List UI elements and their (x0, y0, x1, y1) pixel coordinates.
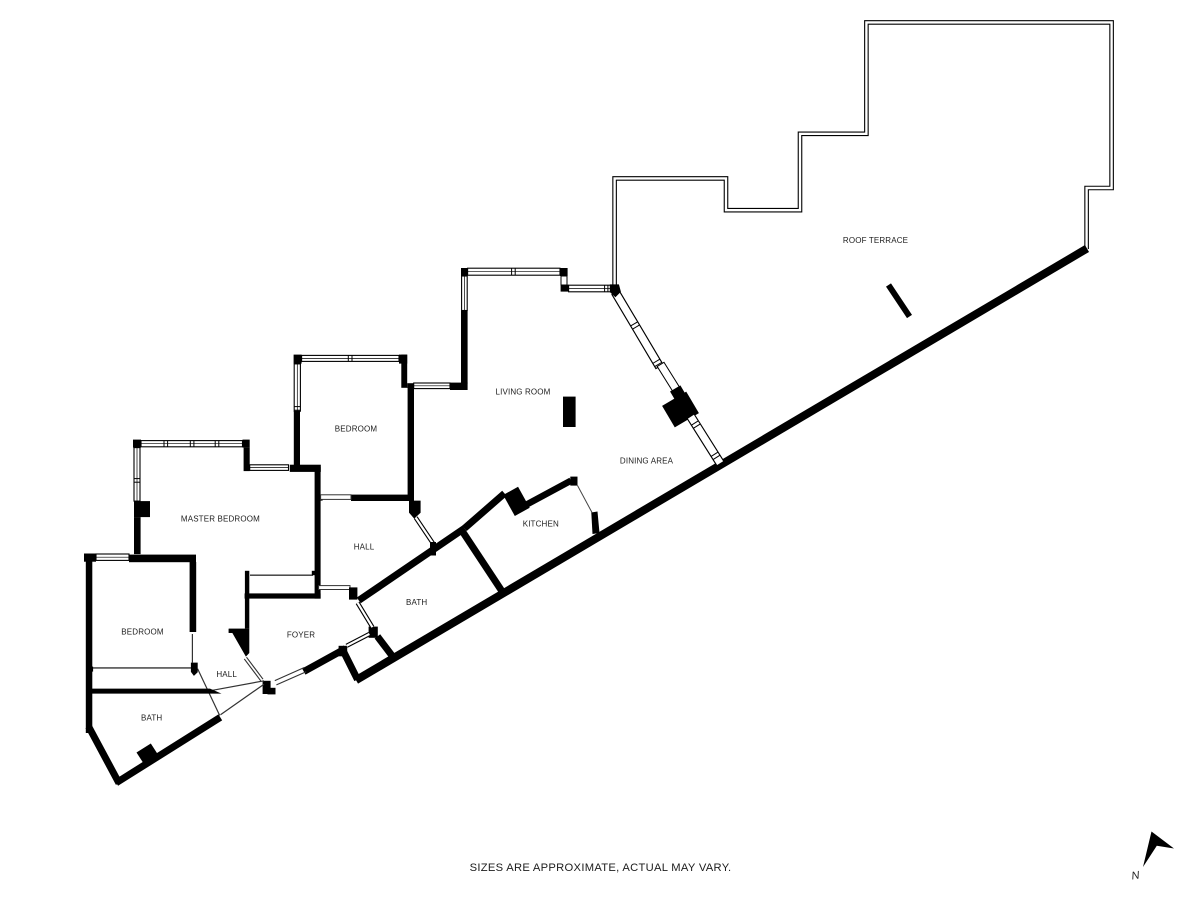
svg-text:BEDROOM: BEDROOM (121, 627, 164, 636)
svg-text:MASTER BEDROOM: MASTER BEDROOM (181, 515, 260, 524)
svg-text:SIZES ARE APPROXIMATE, ACTUAL: SIZES ARE APPROXIMATE, ACTUAL MAY VARY. (470, 862, 732, 874)
svg-text:BEDROOM: BEDROOM (335, 425, 378, 434)
svg-text:N: N (1131, 870, 1141, 883)
svg-text:HALL: HALL (216, 670, 237, 679)
svg-text:DINING AREA: DINING AREA (620, 456, 674, 465)
svg-text:BATH: BATH (406, 598, 427, 607)
svg-text:HALL: HALL (354, 543, 375, 552)
svg-text:BATH: BATH (141, 714, 162, 723)
svg-text:ROOF TERRACE: ROOF TERRACE (843, 236, 908, 245)
svg-text:KITCHEN: KITCHEN (523, 520, 559, 529)
svg-text:LIVING ROOM: LIVING ROOM (496, 388, 551, 397)
svg-text:FOYER: FOYER (287, 631, 315, 640)
